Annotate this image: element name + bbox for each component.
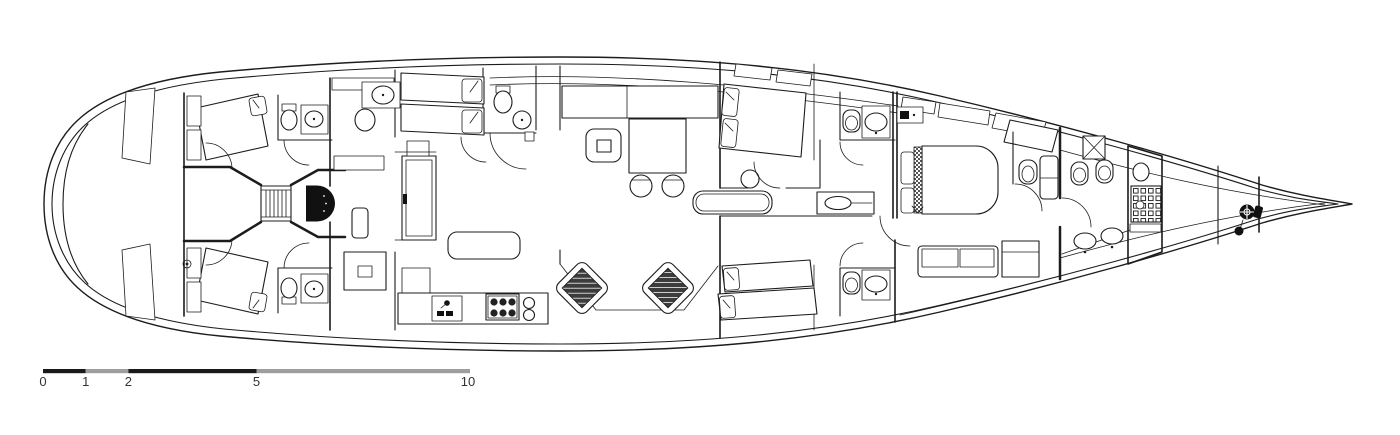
burner	[508, 309, 515, 316]
burner	[490, 309, 497, 316]
burner	[499, 309, 506, 316]
drain	[875, 132, 877, 134]
galley-knob	[446, 311, 453, 316]
scale-label-10: 10	[461, 374, 475, 389]
companionway-stairs	[261, 186, 291, 221]
shower-bench	[1130, 224, 1161, 232]
burner	[508, 298, 515, 305]
locker	[187, 282, 201, 312]
console-dot	[323, 210, 325, 212]
nav-seat	[352, 208, 368, 238]
sink	[865, 276, 887, 292]
shower-tray	[1131, 186, 1161, 222]
aft-head-starboard	[278, 95, 332, 140]
vanity	[1040, 156, 1058, 199]
panel-knob	[913, 114, 915, 116]
headboard	[914, 147, 922, 213]
control-panel-screen	[900, 111, 909, 119]
toilet	[494, 91, 512, 113]
console-dot	[325, 203, 327, 205]
console	[306, 186, 335, 222]
sink	[1074, 233, 1096, 249]
galley-cabinet	[402, 268, 430, 294]
scale-label-2: 2	[125, 374, 132, 389]
locker	[187, 96, 201, 126]
shower-drain	[1136, 201, 1144, 209]
sink-bowl	[524, 298, 535, 309]
burner	[499, 298, 506, 305]
washstand-basin	[825, 197, 851, 210]
drain	[382, 94, 384, 96]
drain	[521, 119, 523, 121]
sideboard	[562, 86, 718, 118]
pillow	[722, 87, 740, 116]
dining-table	[629, 119, 686, 173]
scale-segment-0-1	[43, 369, 86, 373]
chart-table	[344, 252, 386, 290]
shower-basin	[1133, 163, 1149, 181]
pillow	[719, 295, 735, 318]
pillow	[723, 267, 739, 290]
drain	[1111, 246, 1114, 249]
shower-room	[1130, 163, 1161, 232]
guest-head-port	[843, 270, 890, 300]
yacht-deck-plan-drawing: 0 1 2 5 10	[0, 0, 1400, 435]
galley	[334, 141, 548, 324]
chair	[662, 175, 684, 197]
sink-unit	[432, 296, 462, 321]
door-arc	[1062, 198, 1091, 227]
stairs-frame	[261, 186, 291, 221]
scale-bar: 0 1 2 5 10	[39, 369, 475, 389]
side-berth	[1004, 120, 1058, 152]
fridge-handle	[403, 194, 407, 204]
pillow	[901, 188, 914, 213]
galley-peninsula	[448, 232, 520, 259]
console-body	[306, 186, 335, 222]
door-arc	[840, 243, 863, 266]
bed-body	[922, 146, 998, 214]
corridor	[817, 192, 874, 214]
cabinet	[1002, 241, 1039, 277]
guest-cabin-starboard	[719, 64, 812, 188]
settee	[693, 191, 772, 214]
guest-cabin-port	[718, 260, 817, 320]
washbasin	[355, 109, 375, 131]
door-arc	[1015, 184, 1042, 211]
guest-head-starboard	[843, 106, 890, 138]
deck-fitting-dot	[186, 263, 189, 266]
drain	[1084, 251, 1087, 254]
galley-knob	[437, 311, 444, 316]
owner-cabin	[897, 97, 1058, 277]
stove	[486, 294, 519, 320]
pillow	[462, 79, 482, 102]
scale-segment-2-5	[128, 369, 256, 373]
cabinet	[525, 132, 534, 141]
pillow	[721, 118, 739, 147]
pillow	[901, 152, 914, 184]
stern-step-top	[122, 88, 155, 164]
door-arc	[461, 137, 486, 162]
aft-cabin-starboard	[187, 94, 268, 160]
yacht-deck-plan-page: 0 1 2 5 10	[0, 0, 1400, 435]
crew-cabin	[332, 73, 484, 135]
chain-stopper	[1235, 227, 1244, 236]
scale-segment-5-10	[257, 369, 471, 373]
console-dot	[323, 195, 325, 197]
fridge	[402, 156, 436, 240]
scale-label-0: 0	[39, 374, 46, 389]
locker	[187, 130, 201, 160]
toilet	[1019, 160, 1037, 184]
scale-label-1: 1	[82, 374, 89, 389]
sink-bowl	[524, 310, 535, 321]
drain	[313, 288, 315, 290]
door-arc	[840, 142, 863, 165]
drain	[313, 118, 315, 120]
sink	[1101, 228, 1123, 244]
armchair-port-aft	[554, 260, 611, 317]
scale-label-5: 5	[253, 374, 260, 389]
toilet	[281, 110, 297, 130]
owner-bulkhead	[893, 92, 897, 322]
windlass-gypsy	[1253, 205, 1264, 219]
door-arc	[490, 133, 526, 169]
stern-step-bottom	[122, 244, 155, 320]
door-arc	[284, 243, 309, 268]
toilet	[281, 278, 297, 298]
coffee-table	[586, 129, 621, 162]
chair	[630, 175, 652, 197]
pillow	[462, 110, 482, 133]
aft-cabins	[183, 94, 345, 314]
scale-segment-1-2	[86, 369, 129, 373]
owner-sofa	[918, 246, 998, 277]
aft-cabin-port	[187, 248, 268, 314]
door-arc	[284, 140, 309, 165]
drain	[875, 293, 877, 295]
locker	[187, 248, 201, 278]
bulwark-line-bottom	[1060, 203, 1325, 258]
nav-bench	[334, 156, 384, 170]
owner-bed	[901, 146, 998, 214]
burner	[490, 298, 497, 305]
fridge-top	[407, 141, 429, 156]
aft-head-port	[278, 268, 332, 313]
sink	[865, 113, 887, 131]
armchair-starboard-aft	[640, 260, 697, 317]
